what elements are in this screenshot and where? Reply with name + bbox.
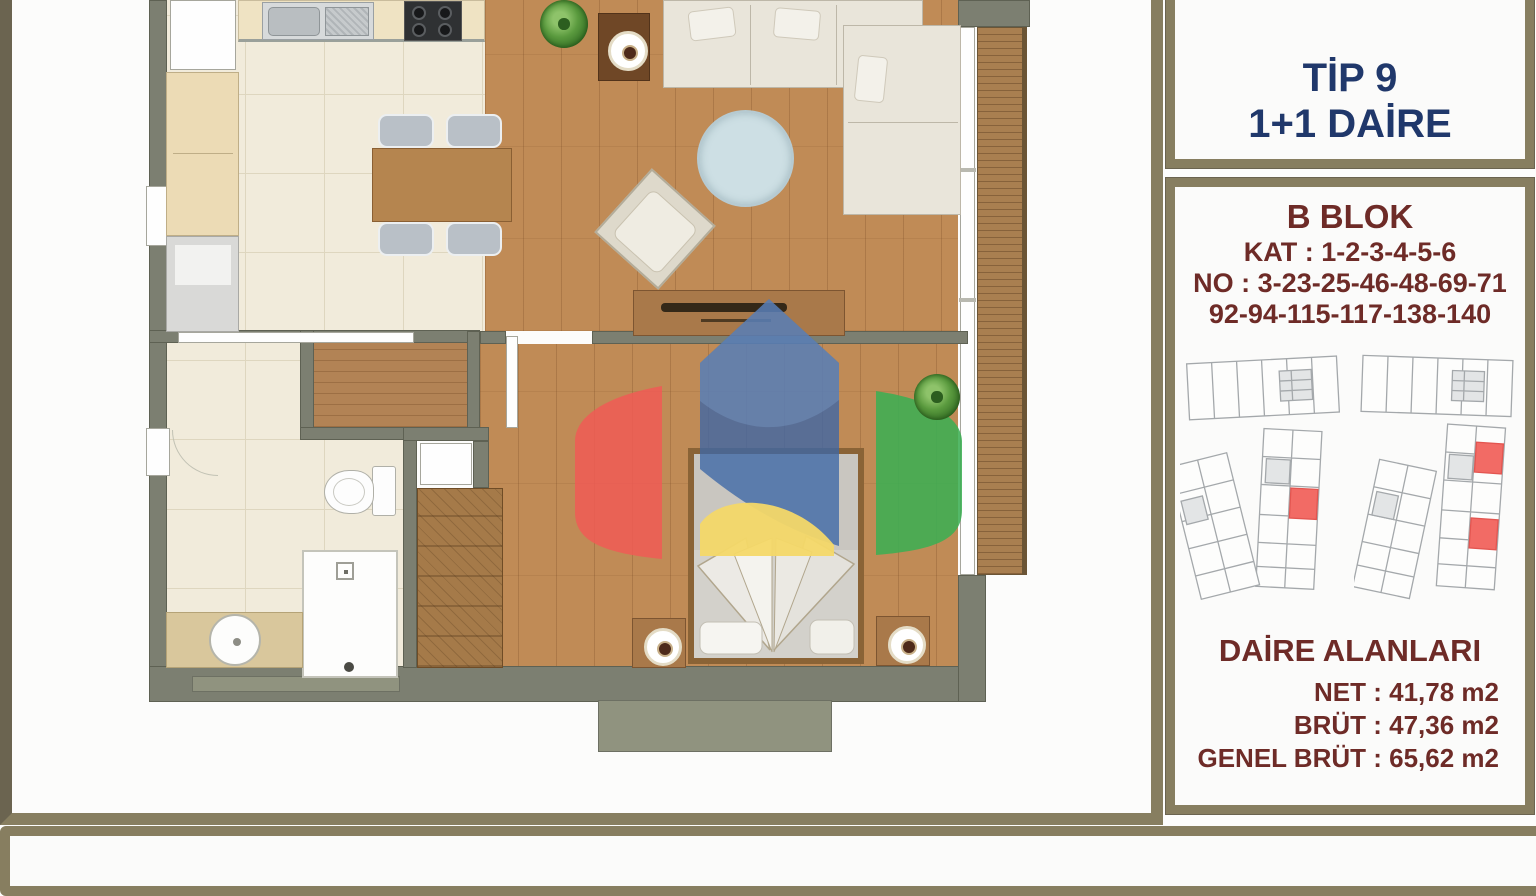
- wall: [403, 440, 417, 668]
- key-plans: [1175, 346, 1525, 618]
- wall: [149, 0, 167, 702]
- wall: [958, 575, 986, 702]
- dining-table: [372, 148, 512, 222]
- sofa-seam: [848, 122, 958, 123]
- burner: [412, 23, 426, 37]
- plant-icon: [914, 374, 960, 420]
- decor-plate: [608, 31, 648, 71]
- wall: [473, 441, 489, 488]
- logo-blue-light: [700, 299, 839, 427]
- sink-drainer: [325, 7, 369, 36]
- washbasin: [209, 614, 261, 666]
- net-area: NET : 41,78 m2: [1175, 676, 1499, 709]
- cabinet-line: [173, 153, 233, 154]
- shower-drain: [336, 562, 354, 580]
- sofa-chaise: [843, 25, 961, 215]
- logo-red-shape: [575, 386, 662, 559]
- corridor-floor: [302, 343, 467, 427]
- bedroom-door: [506, 336, 518, 428]
- block-title: B BLOK: [1175, 197, 1525, 237]
- sliding-door: [178, 332, 414, 343]
- areas-title: DAİRE ALANLARI: [1175, 632, 1525, 670]
- wall: [403, 427, 489, 441]
- drain-dot: [344, 570, 348, 574]
- wall: [480, 331, 506, 344]
- burner: [438, 23, 452, 37]
- sofa-pillow: [687, 6, 736, 41]
- brut-area: BRÜT : 47,36 m2: [1175, 709, 1499, 742]
- dining-chair: [378, 114, 434, 148]
- wall: [467, 331, 480, 440]
- floors-line: KAT : 1-2-3-4-5-6: [1175, 237, 1525, 268]
- dining-chair: [446, 222, 502, 256]
- key-plan-left-icon: [1180, 346, 1346, 614]
- type-box: TİP 9 1+1 DAİRE: [1166, 0, 1534, 168]
- washing-machine: [166, 236, 239, 332]
- toilet-bowl: [324, 470, 374, 514]
- entry-hall-floor: [166, 332, 302, 440]
- wall: [958, 0, 1030, 27]
- unit-label: 1+1 DAİRE: [1248, 101, 1451, 147]
- bathroom-door-opening: [146, 428, 170, 476]
- window-sill-mark: [959, 168, 976, 172]
- wall-protrusion: [598, 700, 832, 752]
- shower-tray: [302, 550, 398, 678]
- info-box: B BLOK KAT : 1-2-3-4-5-6 NO : 3-23-25-46…: [1166, 178, 1534, 814]
- burner: [438, 6, 452, 20]
- balcony-edge: [1022, 27, 1027, 575]
- basin-drain: [233, 638, 241, 646]
- toilet-tank: [372, 466, 396, 516]
- genel-brut-area: GENEL BRÜT : 65,62 m2: [1175, 742, 1499, 775]
- stove: [404, 1, 462, 41]
- toilet-seat: [333, 478, 365, 506]
- window: [170, 0, 236, 70]
- dining-chair: [446, 114, 502, 148]
- key-plan-right-icon: [1354, 346, 1520, 614]
- vanity-counter: [166, 612, 303, 668]
- kitchen-sink: [262, 2, 374, 40]
- numbers-line-1: NO : 3-23-25-46-48-69-71: [1175, 268, 1525, 299]
- shaft-niche: [420, 443, 472, 485]
- shower-faucet: [344, 662, 354, 672]
- nightstand: [632, 618, 686, 668]
- wall: [300, 427, 417, 440]
- sofa-pillow: [773, 7, 821, 41]
- sofa-pillow: [854, 55, 889, 104]
- decor-plate: [888, 626, 926, 664]
- round-rug: [697, 110, 794, 207]
- numbers-line-2: 92-94-115-117-138-140: [1175, 299, 1525, 330]
- watermark-house-logo: [540, 290, 980, 570]
- balcony-deck: [977, 27, 1027, 575]
- wall: [300, 330, 314, 440]
- sofa-seam: [750, 5, 751, 85]
- sink-basin: [268, 7, 320, 36]
- type-label: TİP 9: [1303, 55, 1398, 101]
- plant-icon: [540, 0, 588, 48]
- burner: [412, 6, 426, 20]
- bottom-panel: [0, 826, 1536, 896]
- areas-list: NET : 41,78 m2 BRÜT : 47,36 m2 GENEL BRÜ…: [1175, 676, 1525, 775]
- side-table: [598, 13, 650, 81]
- refrigerator-cabinet: [166, 72, 239, 236]
- sofa-seam: [836, 5, 837, 85]
- washer-lid: [175, 245, 231, 285]
- wardrobe: [417, 488, 503, 668]
- wall-niche: [192, 676, 400, 692]
- dining-chair: [378, 222, 434, 256]
- decor-plate: [644, 628, 682, 666]
- floor-plan: [0, 0, 1150, 826]
- nightstand: [876, 616, 930, 666]
